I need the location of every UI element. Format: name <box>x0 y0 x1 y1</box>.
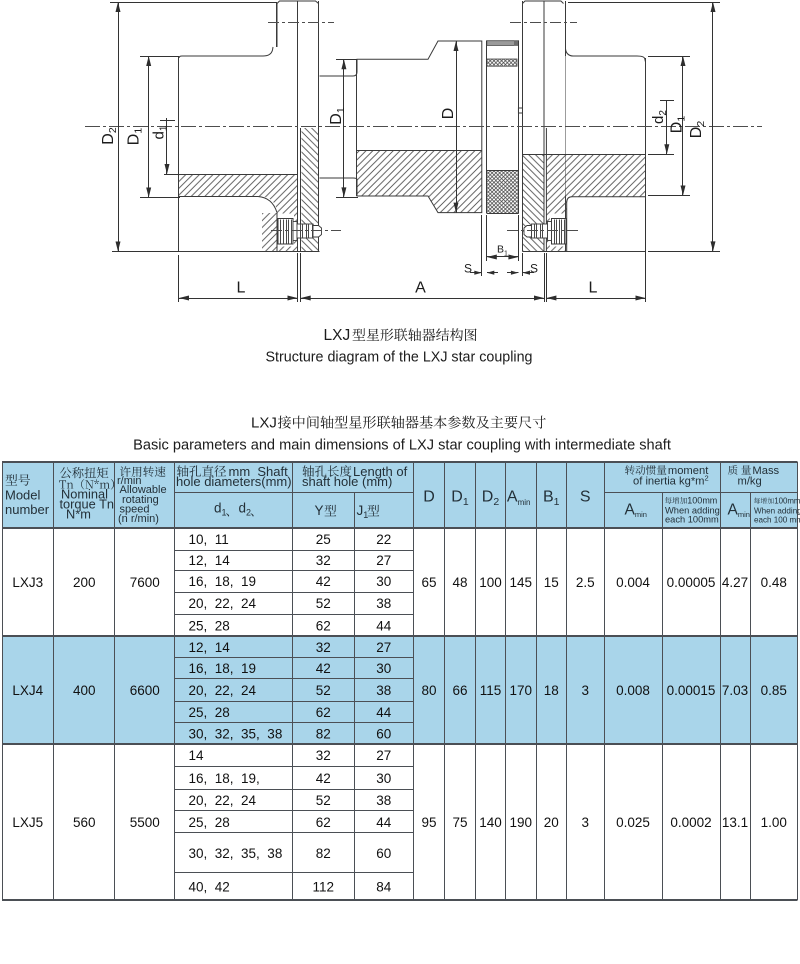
svg-text:65: 65 <box>421 575 436 590</box>
svg-text:Y: Y <box>315 503 324 518</box>
svg-text:32: 32 <box>316 553 331 568</box>
svg-text:25: 25 <box>316 532 331 547</box>
svg-text:52: 52 <box>316 596 331 611</box>
svg-text:66: 66 <box>452 683 467 698</box>
svg-text:0.008: 0.008 <box>616 683 650 698</box>
svg-text:Model: Model <box>5 488 41 503</box>
svg-text:6600: 6600 <box>130 683 160 698</box>
svg-text:42: 42 <box>316 661 331 676</box>
svg-text:25, 28: 25, 28 <box>189 618 230 633</box>
svg-text:42: 42 <box>316 771 331 786</box>
svg-text:170: 170 <box>509 683 532 698</box>
svg-text:100: 100 <box>479 575 502 590</box>
svg-text:95: 95 <box>421 815 436 830</box>
svg-text:0.025: 0.025 <box>616 815 650 830</box>
svg-text:12, 14: 12, 14 <box>189 640 231 655</box>
svg-text:18: 18 <box>544 683 559 698</box>
svg-text:7600: 7600 <box>130 575 160 590</box>
svg-text:d2: d2 <box>650 110 669 124</box>
svg-text:22: 22 <box>376 532 391 547</box>
svg-text:S: S <box>530 262 538 276</box>
svg-text:112: 112 <box>312 879 334 894</box>
svg-text:52: 52 <box>316 793 331 808</box>
svg-text:shaft hole (mm): shaft hole (mm) <box>302 474 392 489</box>
svg-text:20, 22, 24: 20, 22, 24 <box>189 793 257 808</box>
svg-text:each 100mm: each 100mm <box>665 515 719 525</box>
svg-text:20, 22, 24: 20, 22, 24 <box>189 683 257 698</box>
svg-text:27: 27 <box>376 748 391 763</box>
svg-text:62: 62 <box>316 815 331 830</box>
svg-text:100mm: 100mm <box>687 495 717 505</box>
svg-text:number: number <box>5 502 50 517</box>
svg-text:82: 82 <box>316 726 331 741</box>
svg-text:7.03: 7.03 <box>722 683 748 698</box>
svg-text:S: S <box>580 488 591 505</box>
svg-text:each 100 mm: each 100 mm <box>754 516 800 525</box>
svg-text:5500: 5500 <box>130 815 160 830</box>
svg-text:27: 27 <box>376 553 391 568</box>
svg-text:LXJ: LXJ <box>251 415 277 432</box>
svg-text:16, 18, 19: 16, 18, 19 <box>189 661 257 676</box>
svg-text:27: 27 <box>376 640 391 655</box>
svg-text:13.1: 13.1 <box>722 815 748 830</box>
svg-text:30: 30 <box>376 661 391 676</box>
svg-text:82: 82 <box>316 846 331 861</box>
svg-text:38: 38 <box>376 683 391 698</box>
svg-text:16, 18, 19,: 16, 18, 19, <box>189 771 260 786</box>
svg-text:10, 11: 10, 11 <box>189 532 229 547</box>
svg-text:80: 80 <box>421 683 436 698</box>
svg-text:D: D <box>440 108 457 120</box>
svg-text:L: L <box>589 280 598 297</box>
svg-text:2.5: 2.5 <box>576 575 595 590</box>
svg-text:D2: D2 <box>100 127 119 145</box>
svg-text:560: 560 <box>73 815 96 830</box>
svg-text:52: 52 <box>316 683 331 698</box>
svg-text:4.27: 4.27 <box>722 575 748 590</box>
svg-text:A: A <box>415 280 426 297</box>
svg-text:15: 15 <box>544 575 559 590</box>
svg-text:LXJ3: LXJ3 <box>12 575 43 590</box>
svg-text:400: 400 <box>73 683 96 698</box>
svg-text:30, 32, 35, 38: 30, 32, 35, 38 <box>189 726 283 741</box>
svg-text:48: 48 <box>452 575 467 590</box>
svg-text:0.00015: 0.00015 <box>667 683 716 698</box>
svg-text:115: 115 <box>480 683 502 698</box>
svg-text:16, 18, 19: 16, 18, 19 <box>189 574 257 589</box>
svg-text:30: 30 <box>376 574 391 589</box>
svg-text:3: 3 <box>581 683 589 698</box>
svg-text:145: 145 <box>509 575 532 590</box>
svg-text:25, 28: 25, 28 <box>189 705 230 720</box>
svg-text:0.85: 0.85 <box>761 683 787 698</box>
svg-text:100mm: 100mm <box>774 496 800 505</box>
svg-text:Basic parameters and main dime: Basic parameters and main dimensions of … <box>133 438 671 454</box>
svg-text:190: 190 <box>509 815 532 830</box>
svg-text:B1: B1 <box>497 244 508 258</box>
svg-text:38: 38 <box>376 793 391 808</box>
svg-text:When adding: When adding <box>754 506 800 515</box>
svg-text:D1: D1 <box>125 128 144 146</box>
svg-text:44: 44 <box>376 705 392 720</box>
svg-text:3: 3 <box>581 815 589 830</box>
svg-text:38: 38 <box>376 596 391 611</box>
svg-text:D1: D1 <box>668 116 687 134</box>
svg-text:LXJ5: LXJ5 <box>12 815 43 830</box>
svg-text:62: 62 <box>316 618 331 633</box>
svg-text:200: 200 <box>73 575 96 590</box>
svg-text:S: S <box>464 262 472 276</box>
svg-text:30, 32, 35, 38: 30, 32, 35, 38 <box>189 846 283 861</box>
svg-text:hole diameters(mm): hole diameters(mm) <box>176 474 292 489</box>
svg-text:44: 44 <box>376 618 392 633</box>
svg-text:20: 20 <box>544 815 559 830</box>
svg-text:1.00: 1.00 <box>761 815 787 830</box>
svg-text:0.00005: 0.00005 <box>667 575 716 590</box>
svg-text:62: 62 <box>316 705 331 720</box>
svg-text:42: 42 <box>316 574 331 589</box>
svg-text:0.0002: 0.0002 <box>670 815 711 830</box>
svg-text:60: 60 <box>376 726 391 741</box>
svg-text:0.004: 0.004 <box>616 575 650 590</box>
svg-text:25, 28: 25, 28 <box>189 815 230 830</box>
svg-text:D: D <box>423 488 435 505</box>
svg-text:40, 42: 40, 42 <box>189 879 230 894</box>
svg-text:(n r/min): (n r/min) <box>118 513 159 525</box>
svg-text:LXJ4: LXJ4 <box>12 683 43 698</box>
svg-text:32: 32 <box>316 748 331 763</box>
svg-text:of inertia kg*m2: of inertia kg*m2 <box>633 473 709 487</box>
svg-text:m/kg: m/kg <box>738 476 762 488</box>
svg-text:20, 22, 24: 20, 22, 24 <box>189 596 257 611</box>
svg-text:0.48: 0.48 <box>761 575 787 590</box>
svg-text:30: 30 <box>376 771 391 786</box>
svg-text:84: 84 <box>376 879 392 894</box>
svg-text:LXJ: LXJ <box>324 327 351 344</box>
svg-text:D2: D2 <box>688 121 707 139</box>
svg-text:12, 14: 12, 14 <box>189 553 231 568</box>
svg-text:44: 44 <box>376 815 392 830</box>
svg-text:L: L <box>237 280 246 297</box>
svg-text:N*m: N*m <box>66 507 91 522</box>
svg-text:140: 140 <box>479 815 502 830</box>
svg-text:d1: d1 <box>151 125 170 139</box>
svg-text:60: 60 <box>376 846 391 861</box>
svg-text:Structure diagram of the LXJ s: Structure diagram of the LXJ star coupli… <box>265 350 532 366</box>
svg-text:32: 32 <box>316 640 331 655</box>
svg-text:14: 14 <box>189 748 205 763</box>
svg-text:75: 75 <box>452 815 467 830</box>
